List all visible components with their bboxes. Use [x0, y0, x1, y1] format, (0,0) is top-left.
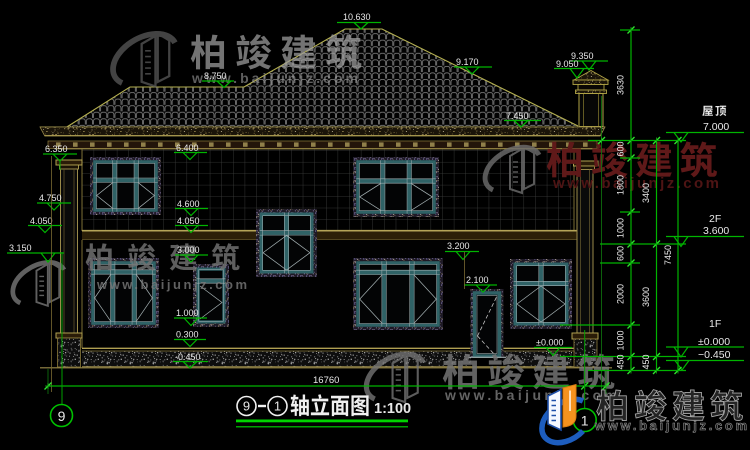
svg-text:4.750: 4.750	[39, 193, 62, 203]
svg-text:6.350: 6.350	[45, 144, 68, 154]
svg-text:9.170: 9.170	[456, 57, 479, 67]
svg-text:3.000: 3.000	[177, 245, 200, 255]
svg-text:2000: 2000	[616, 284, 626, 304]
svg-text:±0.000: ±0.000	[536, 338, 563, 348]
svg-text:7.450: 7.450	[506, 111, 529, 121]
svg-text:±0.000: ±0.000	[698, 336, 730, 348]
svg-text:6.400: 6.400	[176, 143, 199, 153]
svg-text:1.000: 1.000	[176, 308, 199, 318]
svg-text:9: 9	[243, 399, 250, 414]
svg-text:450: 450	[641, 354, 651, 369]
svg-text:450: 450	[616, 354, 626, 369]
svg-text:3600: 3600	[641, 287, 651, 307]
svg-text:3.200: 3.200	[447, 241, 470, 251]
svg-text:1F: 1F	[709, 318, 721, 330]
svg-text:3630: 3630	[616, 75, 626, 95]
svg-text:9.050: 9.050	[556, 59, 579, 69]
svg-text:1: 1	[581, 413, 589, 429]
svg-text:2.100: 2.100	[466, 275, 489, 285]
svg-text:10.630: 10.630	[343, 12, 371, 22]
svg-text:3.150: 3.150	[9, 243, 32, 253]
svg-text:16760: 16760	[313, 375, 339, 386]
svg-text:1000: 1000	[616, 218, 626, 238]
svg-text:9: 9	[58, 408, 66, 424]
svg-text:8.750: 8.750	[204, 71, 227, 81]
svg-text:3400: 3400	[641, 183, 651, 203]
svg-text:7450: 7450	[663, 245, 673, 265]
svg-text:4.050: 4.050	[30, 216, 53, 226]
svg-text:600: 600	[616, 246, 626, 261]
svg-text:−0.450: −0.450	[698, 349, 731, 361]
svg-text:2F: 2F	[709, 213, 721, 225]
svg-text:4.600: 4.600	[177, 199, 200, 209]
svg-text:1: 1	[274, 399, 281, 414]
svg-text:7.000: 7.000	[703, 121, 729, 133]
svg-text:0.300: 0.300	[176, 330, 199, 340]
svg-text:4.050: 4.050	[177, 216, 200, 226]
svg-text:-0.450: -0.450	[175, 352, 201, 362]
svg-text:600: 600	[616, 141, 626, 156]
svg-text:1800: 1800	[616, 175, 626, 195]
svg-text:3.600: 3.600	[703, 225, 729, 237]
svg-text:1:100: 1:100	[374, 401, 411, 417]
svg-text:1000: 1000	[616, 330, 626, 350]
